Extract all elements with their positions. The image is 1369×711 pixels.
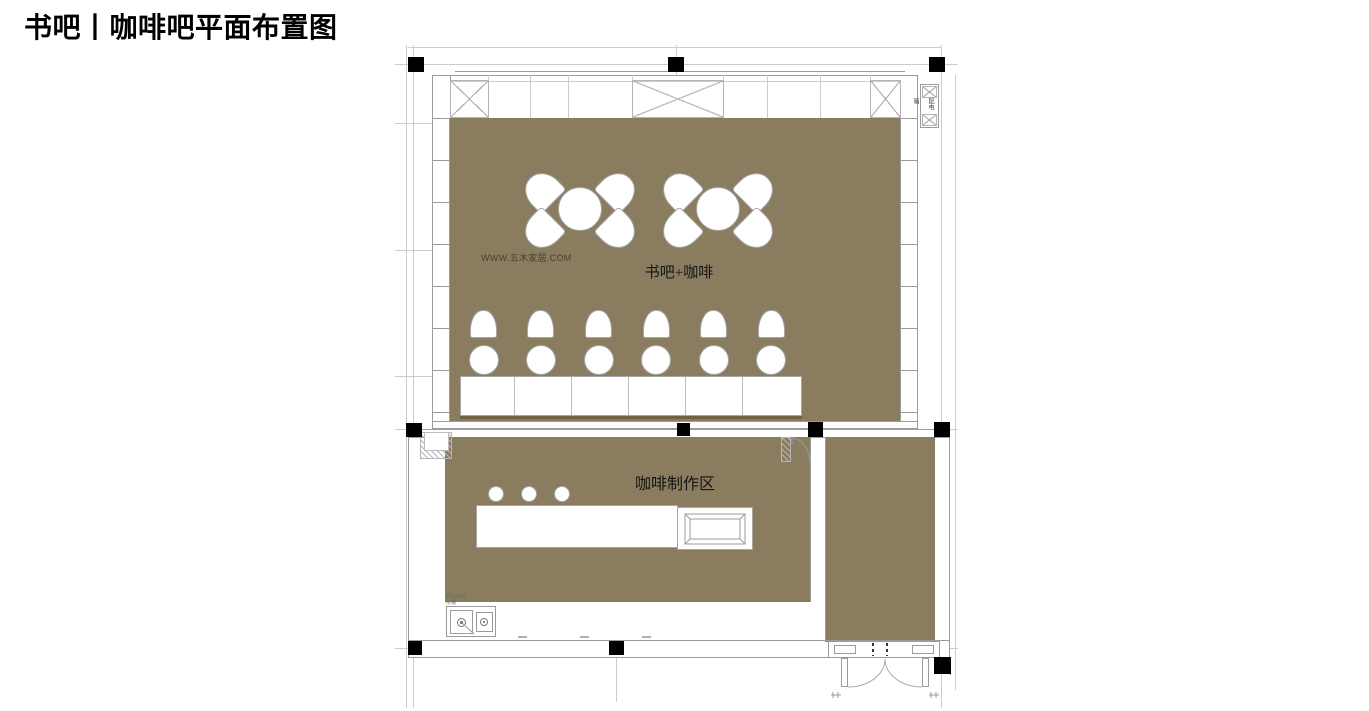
- cabinet-divider: [571, 377, 572, 415]
- book-bar-bottom-wall: [432, 421, 918, 422]
- floor-plan: 配电箱 WWW.五木家居.COM 书吧+咖啡: [0, 0, 1369, 711]
- bar-stool: [521, 486, 537, 502]
- coffee-station-label: 咖啡制作区: [625, 470, 725, 494]
- window-seat-table: [469, 345, 499, 375]
- door-jamb-right: [912, 645, 934, 654]
- shaft-xbrace-bottom: [922, 114, 937, 126]
- shaft-box: 配电箱: [920, 84, 939, 128]
- book-bar-label: 书吧+咖啡: [629, 261, 729, 282]
- wall-tick: [642, 636, 651, 638]
- alcove-cabinet: [424, 432, 449, 451]
- column: [808, 422, 823, 437]
- grid-ext-left-3: [395, 376, 435, 377]
- cabinet-divider: [514, 377, 515, 415]
- wall-tick: [580, 636, 589, 638]
- column: [406, 423, 422, 437]
- shaft-xbrace-top: [922, 86, 937, 98]
- window-seat-table: [641, 345, 671, 375]
- window-seat-table: [526, 345, 556, 375]
- entry-floor: [825, 437, 935, 642]
- column: [929, 57, 945, 72]
- sink-detail-lines: [447, 607, 497, 638]
- grid-line-top: [408, 47, 941, 48]
- window-wall-right: [900, 118, 918, 421]
- shelf-divider: [820, 75, 821, 118]
- door-center-stop: [886, 643, 888, 656]
- cabinet-divider: [742, 377, 743, 415]
- entry-door-frame: [828, 641, 940, 658]
- round-table: [696, 187, 740, 231]
- window-seat-table: [699, 345, 729, 375]
- wall-tick: [518, 636, 527, 638]
- grid-line-axis-3b: [955, 75, 956, 690]
- column: [934, 657, 951, 674]
- column: [934, 422, 950, 437]
- watermark: WWW.五木家居.COM: [481, 251, 572, 264]
- shelf-xbrace-left: [450, 80, 489, 118]
- column: [677, 423, 690, 436]
- column: [408, 641, 422, 655]
- page: { "title": "书吧丨咖啡吧平面布置图", "watermark": "…: [0, 0, 1369, 711]
- equipment-cabinet: [677, 507, 753, 550]
- shaft-label: 配电箱: [922, 98, 937, 114]
- grid-ext-left-2: [395, 250, 435, 251]
- entry-door-swing: [828, 658, 942, 710]
- column: [408, 57, 424, 72]
- window-seat-table: [756, 345, 786, 375]
- bar-stool: [554, 486, 570, 502]
- bar-counter: [476, 505, 678, 548]
- shelf-divider: [568, 75, 569, 118]
- door-jamb-left: [834, 645, 856, 654]
- cabinet-divider: [628, 377, 629, 415]
- column: [609, 641, 624, 655]
- column: [668, 57, 684, 72]
- shelf-xbrace-center: [632, 80, 724, 118]
- grid-ext-left-1: [395, 123, 435, 124]
- window-wall-left: [432, 118, 450, 421]
- window-seat-table: [584, 345, 614, 375]
- shelf-xbrace-right: [870, 80, 901, 118]
- interior-door-hatch: [781, 437, 791, 462]
- door-center-stop: [872, 643, 874, 656]
- low-cabinet: [460, 376, 802, 416]
- cabinet-divider: [685, 377, 686, 415]
- bar-stool: [488, 486, 504, 502]
- equipment-tray: [678, 508, 754, 551]
- partition-line-right: [825, 437, 826, 642]
- interior-door-swing: [791, 437, 813, 464]
- sink-unit: [446, 606, 496, 637]
- round-table: [558, 187, 602, 231]
- shelf-divider: [767, 75, 768, 118]
- shelf-divider: [530, 75, 531, 118]
- grid-line-axis-1: [406, 45, 407, 708]
